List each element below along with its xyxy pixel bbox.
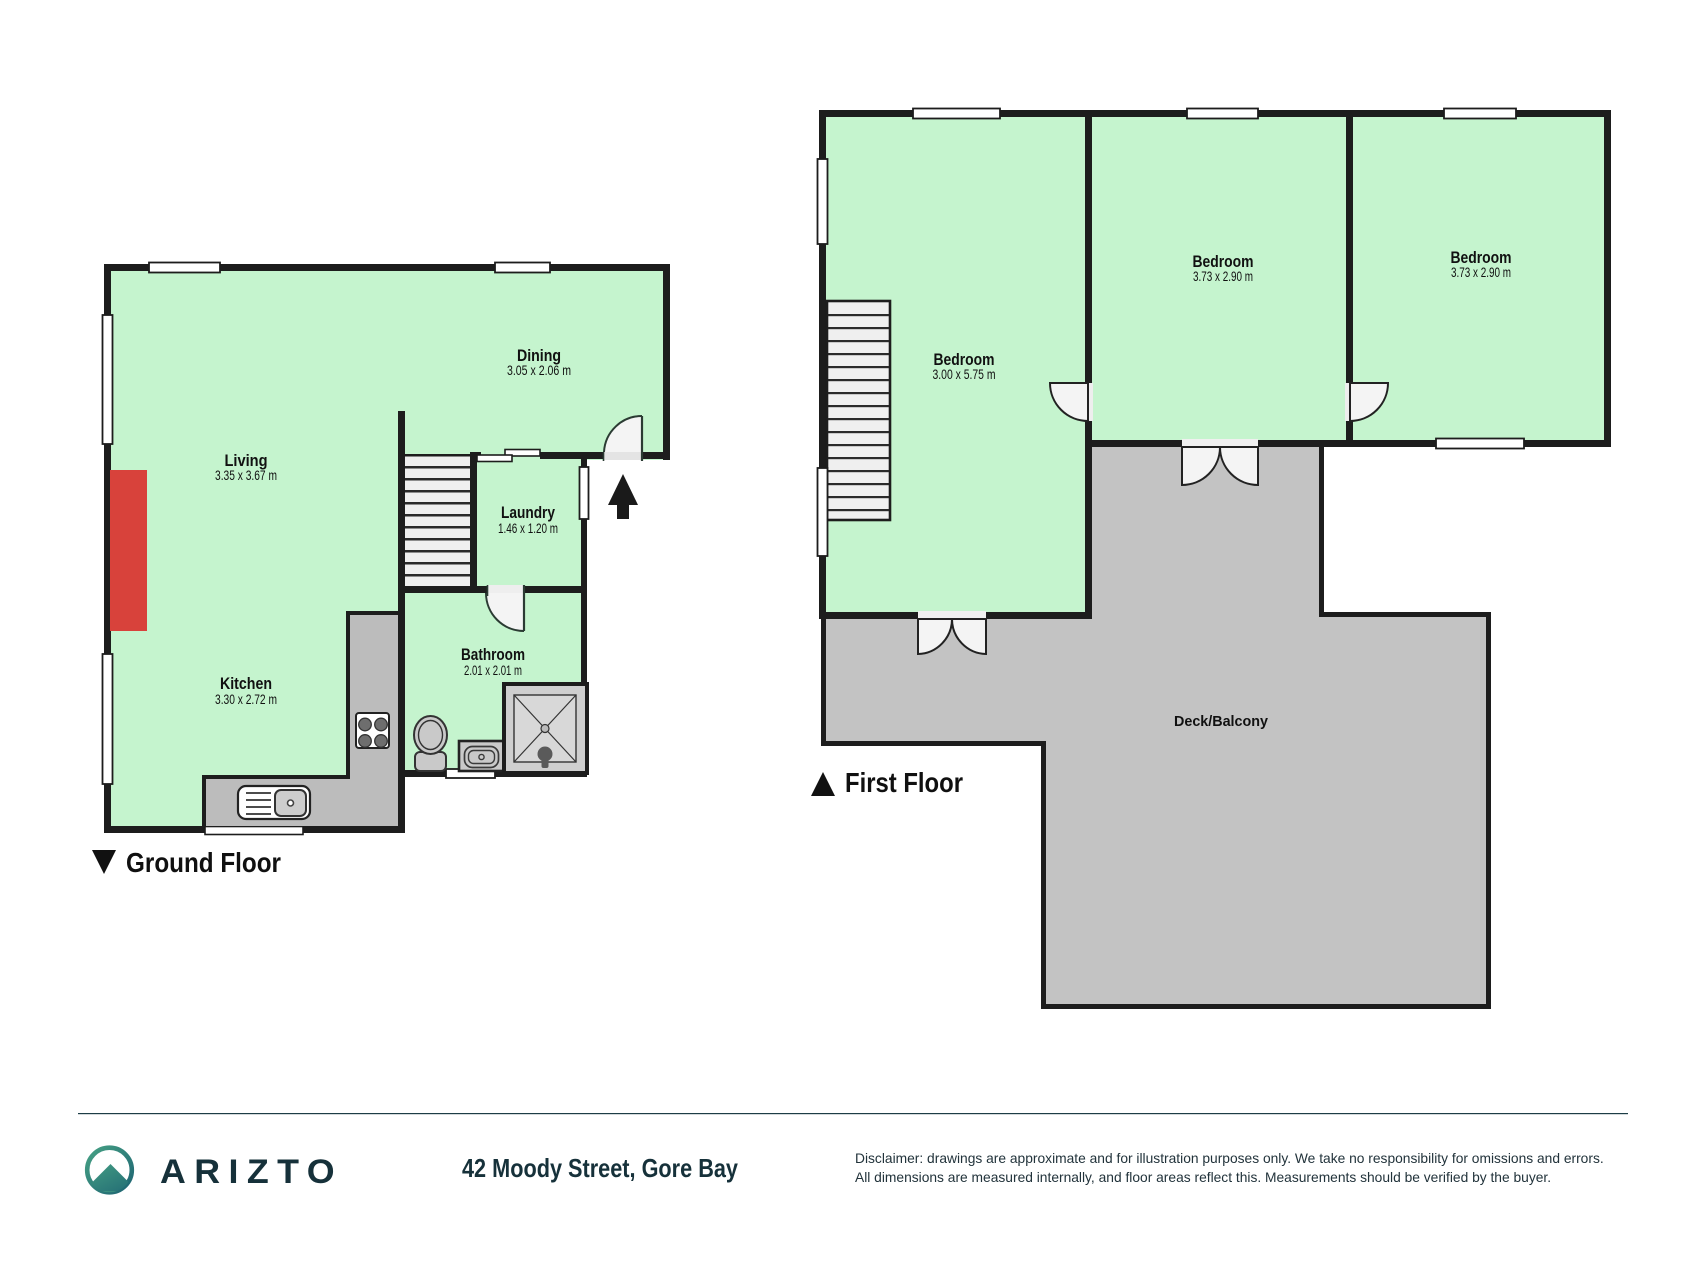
svg-text:3.30 x 2.72 m: 3.30 x 2.72 m xyxy=(215,692,277,707)
svg-text:3.05 x 2.06 m: 3.05 x 2.06 m xyxy=(507,363,571,378)
svg-text:3.00 x 5.75 m: 3.00 x 5.75 m xyxy=(933,367,996,382)
svg-text:Kitchen: Kitchen xyxy=(220,674,272,693)
svg-text:Deck/Balcony: Deck/Balcony xyxy=(1174,713,1269,730)
svg-text:Disclaimer: drawings are appro: Disclaimer: drawings are approximate and… xyxy=(855,1151,1604,1166)
svg-text:1.46 x 1.20 m: 1.46 x 1.20 m xyxy=(498,521,558,536)
svg-text:Ground Floor: Ground Floor xyxy=(126,847,281,878)
svg-text:3.73 x 2.90 m: 3.73 x 2.90 m xyxy=(1451,265,1511,280)
svg-text:42 Moody Street, Gore Bay: 42 Moody Street, Gore Bay xyxy=(462,1153,738,1183)
svg-text:3.73 x 2.90 m: 3.73 x 2.90 m xyxy=(1193,269,1253,284)
svg-text:ARIZTO: ARIZTO xyxy=(160,1153,343,1191)
svg-text:All dimensions are measured in: All dimensions are measured internally, … xyxy=(855,1170,1551,1185)
svg-text:First Floor: First Floor xyxy=(845,767,963,798)
svg-text:Bathroom: Bathroom xyxy=(461,645,525,664)
svg-text:Laundry: Laundry xyxy=(501,503,555,522)
svg-text:2.01 x 2.01 m: 2.01 x 2.01 m xyxy=(464,663,522,678)
svg-text:3.35 x 3.67 m: 3.35 x 3.67 m xyxy=(215,468,277,483)
